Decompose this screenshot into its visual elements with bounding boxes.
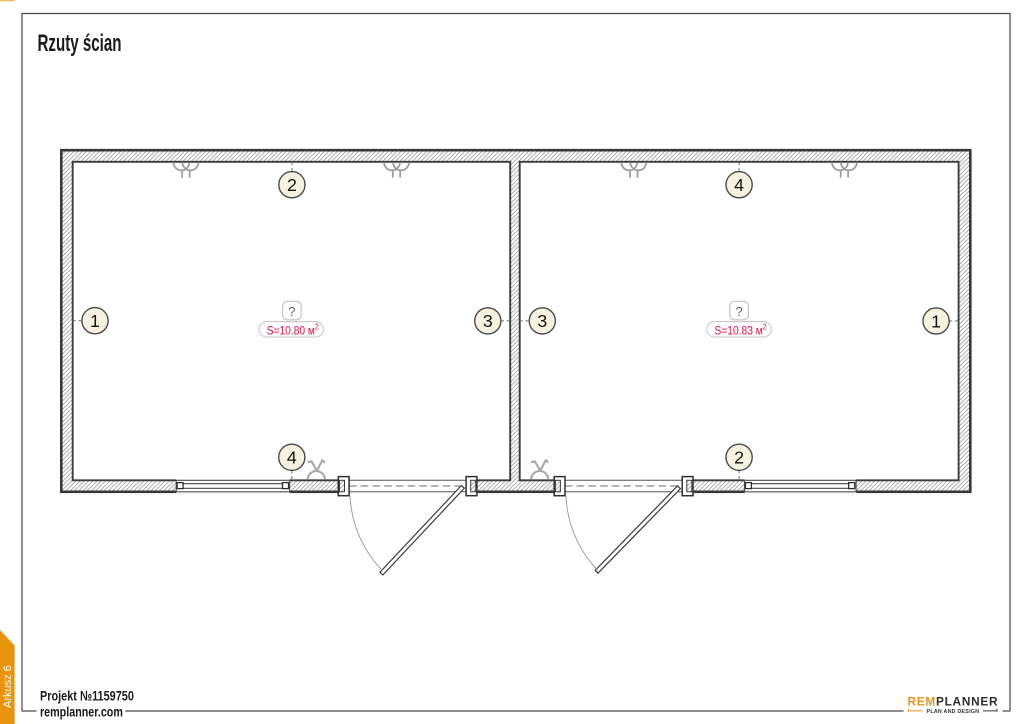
svg-text:?: ?: [735, 304, 742, 319]
svg-text:2: 2: [734, 448, 744, 468]
svg-text:?: ?: [288, 304, 295, 319]
svg-text:Rzuty ścian: Rzuty ścian: [38, 31, 122, 57]
svg-text:REMPLANNER: REMPLANNER: [908, 695, 999, 709]
svg-text:S=10.80 м2: S=10.80 м2: [267, 322, 319, 338]
svg-text:3: 3: [537, 311, 547, 331]
svg-text:2: 2: [287, 175, 297, 195]
svg-text:remplanner.com: remplanner.com: [40, 704, 123, 720]
svg-text:4: 4: [734, 175, 744, 195]
svg-text:1: 1: [90, 311, 100, 331]
svg-text:PLAN AND DESIGN: PLAN AND DESIGN: [927, 709, 980, 715]
svg-text:S=10.83 м2: S=10.83 м2: [715, 322, 767, 338]
svg-text:4: 4: [287, 448, 297, 468]
svg-text:1: 1: [931, 311, 941, 331]
svg-text:Projekt №1159750: Projekt №1159750: [40, 688, 134, 704]
svg-text:3: 3: [483, 311, 493, 331]
svg-text:Arkusz 6: Arkusz 6: [2, 665, 14, 708]
